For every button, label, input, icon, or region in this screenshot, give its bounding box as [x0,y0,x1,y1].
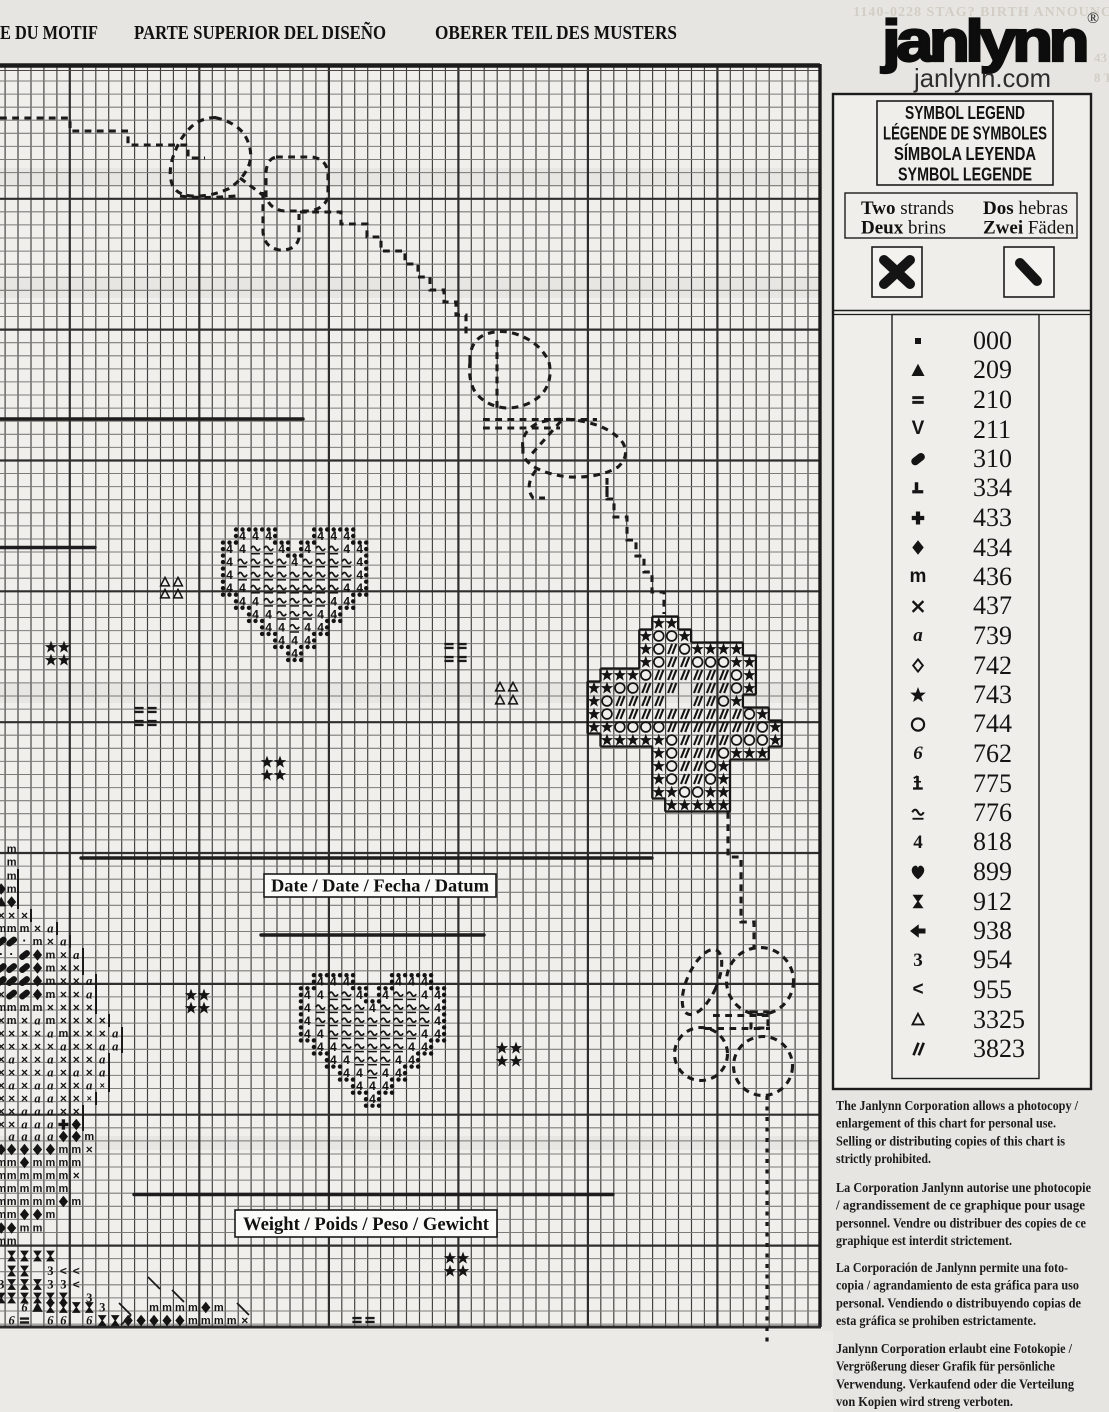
svg-text:Zwei Fäden: Zwei Fäden [983,218,1075,239]
svg-text:×: × [0,1104,5,1118]
svg-text:4: 4 [317,988,324,1002]
svg-text:4: 4 [317,1027,324,1041]
svg-text:4: 4 [304,1014,311,1028]
svg-text:m: m [7,1209,17,1221]
svg-text:334: 334 [973,473,1012,502]
svg-text:×: × [21,1065,28,1079]
svg-text:×: × [60,961,67,975]
svg-text:×: × [73,974,80,988]
svg-text:×: × [8,1039,15,1053]
svg-text:4: 4 [239,581,246,595]
svg-text:m: m [46,1170,56,1182]
svg-text:211: 211 [973,415,1011,444]
svg-text:m: m [46,989,56,1001]
svg-text:×: × [73,1026,80,1040]
svg-text:×: × [8,1104,15,1118]
svg-text:×: × [0,1065,5,1079]
svg-text:m: m [33,936,43,948]
svg-text:6: 6 [913,743,923,764]
svg-text:m: m [7,871,17,883]
svg-text:×: × [86,1052,93,1066]
svg-text:4: 4 [382,1066,389,1080]
svg-text:×: × [8,1091,15,1105]
svg-text:×: × [86,1000,93,1014]
svg-text:m: m [7,884,17,896]
svg-text:210: 210 [973,385,1012,414]
svg-text:×: × [73,1104,80,1118]
svg-text:m: m [46,1196,56,1208]
svg-text:personal. Vendiendo o distrib: personal. Vendiendo o distribuyendo copi… [836,1295,1081,1310]
svg-text:<: < [73,1264,80,1278]
svg-text:personnel. Vendre ou distribue: personnel. Vendre ou distribuer des copi… [836,1215,1086,1230]
svg-text:La Corporation Janlynn autoris: La Corporation Janlynn autorise une phot… [836,1180,1091,1195]
svg-text:m: m [0,1236,6,1248]
svg-text:m: m [33,1223,43,1235]
svg-text:899: 899 [973,857,1012,886]
svg-text:<: < [73,1277,80,1291]
svg-text:SYMBOL LEGEND: SYMBOL LEGEND [905,102,1025,123]
svg-text:×: × [8,1026,15,1040]
svg-text:3: 3 [60,1278,66,1292]
svg-text:a: a [47,1052,53,1066]
svg-text:×: × [86,1065,93,1079]
svg-text:/ agrandissement de ce graphiq: / agrandissement de ce graphique pour us… [835,1198,1085,1213]
svg-text:a: a [47,921,53,935]
svg-text:4: 4 [343,542,350,556]
svg-text:m: m [0,1209,6,1221]
svg-text:4: 4 [304,1001,311,1015]
svg-text:3: 3 [47,1278,53,1292]
svg-text:4: 4 [291,634,298,648]
svg-text:m: m [84,1131,94,1143]
svg-text:m: m [33,1183,43,1195]
svg-text:×: × [47,1000,54,1014]
svg-text:6: 6 [86,1314,93,1328]
svg-text:·: · [22,933,26,948]
svg-text:912: 912 [973,887,1012,916]
svg-text:a: a [86,1078,92,1092]
svg-text:m: m [20,1002,30,1014]
svg-text:Deux brins: Deux brins [861,218,946,239]
svg-text:4: 4 [913,832,923,853]
svg-text:743: 743 [973,680,1012,709]
svg-text:×: × [34,1052,41,1066]
svg-text:m: m [59,1170,69,1182]
svg-text:×: × [86,1026,93,1040]
svg-text:m: m [7,1170,17,1182]
svg-text:742: 742 [973,651,1012,680]
svg-text:m: m [7,1157,17,1169]
svg-text:Selling or distributing copies: Selling or distributing copies of this c… [836,1133,1066,1148]
svg-text:4: 4 [434,1001,441,1015]
svg-text:×: × [73,1168,80,1182]
svg-text:m: m [149,1302,159,1314]
svg-text:a: a [99,1065,105,1079]
svg-text:×: × [60,1052,67,1066]
svg-text:m: m [46,950,56,962]
svg-text:434: 434 [973,533,1012,562]
svg-text:m: m [7,1015,17,1027]
svg-text:4: 4 [343,581,350,595]
svg-text:×: × [87,1094,92,1104]
svg-text:m: m [33,1157,43,1169]
svg-text:×: × [73,961,80,975]
svg-text:4: 4 [356,555,363,569]
svg-text:×: × [60,1091,67,1105]
svg-text:×: × [86,1039,93,1053]
svg-text:a: a [47,1129,53,1143]
svg-text:a: a [913,625,923,646]
svg-text:×: × [21,1091,28,1105]
svg-text:×: × [21,1052,28,1066]
svg-text:×: × [8,908,15,922]
svg-text:×: × [73,987,80,1001]
svg-text:3: 3 [99,1301,105,1315]
svg-text:Weight / Poids / Peso / Gewich: Weight / Poids / Peso / Gewicht [243,1214,490,1235]
svg-text:×: × [0,908,5,922]
svg-text:m: m [20,1170,30,1182]
svg-text:a: a [21,1104,27,1118]
svg-text:janlynn.com: janlynn.com [913,63,1051,93]
svg-text:6: 6 [47,1314,54,1328]
svg-text:a: a [86,987,92,1001]
svg-text:×: × [21,1026,28,1040]
svg-text:×: × [0,1052,5,1066]
svg-text:4: 4 [408,1040,415,1054]
svg-text:a: a [34,1091,40,1105]
svg-text:m: m [20,1196,30,1208]
svg-text:×: × [100,1081,105,1091]
svg-text:000: 000 [973,326,1012,355]
svg-text:m: m [46,1157,56,1169]
svg-text:a: a [8,1129,14,1143]
svg-text:m: m [20,1223,30,1235]
svg-text:×: × [60,974,67,988]
svg-text:a: a [60,1039,66,1053]
svg-text:4: 4 [239,542,246,556]
svg-text:4: 4 [356,1066,363,1080]
svg-text:4: 4 [434,1014,441,1028]
svg-text:6: 6 [60,1314,67,1328]
svg-text:×: × [21,1013,28,1027]
svg-text:×: × [47,1039,54,1053]
svg-text:esta gráfica se prohiben estri: esta gráfica se prohiben estrictamente. [836,1313,1036,1328]
svg-text:×: × [73,1078,80,1092]
svg-text:3: 3 [0,1278,4,1292]
svg-text:V: V [912,418,925,439]
svg-text:776: 776 [973,798,1012,827]
svg-text:®: ® [1087,10,1099,27]
svg-text:m: m [7,1002,17,1014]
svg-text:m: m [0,1157,6,1169]
svg-text:×: × [99,1013,106,1027]
svg-text:×: × [241,1313,248,1327]
svg-text:a: a [8,1052,14,1066]
svg-text:SYMBOL LEGENDE: SYMBOL LEGENDE [898,164,1032,185]
svg-text:4: 4 [252,594,259,608]
svg-text:437: 437 [973,591,1012,620]
svg-text:graphique est interdit stricte: graphique est interdit strictement. [836,1233,1012,1248]
svg-text:a: a [47,1091,53,1105]
svg-text:×: × [60,1078,67,1092]
svg-text:m: m [0,1002,6,1014]
svg-text:a: a [34,1078,40,1092]
svg-text:×: × [73,1000,80,1014]
svg-text:×: × [0,1117,5,1131]
svg-text:a: a [99,1052,105,1066]
svg-text:×: × [60,1065,67,1079]
svg-text:4: 4 [421,988,428,1002]
svg-text:a: a [47,1078,53,1092]
svg-text:×: × [8,1065,15,1079]
svg-text:Verwendung. Verkaufend oder d: Verwendung. Verkaufend oder die Verteilu… [836,1376,1074,1391]
svg-text:775: 775 [973,769,1012,798]
svg-text:m: m [46,1015,56,1027]
svg-text:×: × [34,1026,41,1040]
svg-text:m: m [46,1209,56,1221]
svg-text:m: m [0,1170,6,1182]
svg-text:4: 4 [330,594,337,608]
svg-text:4: 4 [226,555,233,569]
svg-text:a: a [112,1039,118,1053]
svg-text:m: m [33,1196,43,1208]
svg-text:a: a [8,1078,14,1092]
svg-text:m: m [227,1315,237,1327]
svg-text:m: m [33,1002,43,1014]
svg-text:m: m [59,1183,69,1195]
svg-text:×: × [73,1052,80,1066]
svg-text:3823: 3823 [973,1034,1025,1063]
svg-text:·: · [9,947,13,962]
svg-text:m: m [7,1236,17,1248]
svg-text:m: m [0,1196,6,1208]
svg-text:×: × [60,1000,67,1014]
svg-text:m: m [7,1183,17,1195]
svg-text:m: m [7,844,17,856]
svg-text:6: 6 [21,1301,28,1315]
svg-text:OBERER TEIL DES MUSTERS: OBERER TEIL DES MUSTERS [435,22,677,44]
svg-text:Two strands: Two strands [861,198,954,219]
svg-text:×: × [0,1013,5,1027]
svg-text:Date / Date / Fecha / Datum: Date / Date / Fecha / Datum [271,876,489,896]
svg-text:938: 938 [973,916,1012,945]
svg-text:×: × [60,948,67,962]
svg-text:a: a [21,1129,27,1143]
svg-text:a: a [73,948,79,962]
svg-text:a: a [34,1013,40,1027]
svg-text:m: m [188,1302,198,1314]
svg-text:a: a [47,1104,53,1118]
svg-text:×: × [60,1013,67,1027]
svg-text:818: 818 [973,827,1012,856]
svg-text:m: m [71,1157,81,1169]
svg-text:436: 436 [973,562,1012,591]
svg-text:4: 4 [356,568,363,582]
svg-text:The Janlynn Corporation allows: The Janlynn Corporation allows a photoco… [836,1098,1078,1113]
svg-text:4: 4 [265,607,272,621]
svg-text:×: × [21,1039,28,1053]
svg-text:La Corporación de Janlynn perm: La Corporación de Janlynn permite una fo… [836,1260,1068,1275]
svg-text:m: m [46,976,56,988]
svg-text:a: a [60,934,66,948]
svg-text:m: m [59,1028,69,1040]
svg-text:4: 4 [343,1053,350,1067]
svg-text:×: × [73,1039,80,1053]
svg-text:m: m [7,1196,17,1208]
svg-text:×: × [34,921,41,935]
svg-text:739: 739 [973,621,1012,650]
svg-text:4: 4 [278,620,285,634]
svg-text:×: × [21,1078,28,1092]
svg-text:3: 3 [913,950,923,971]
svg-text:×: × [73,1013,80,1027]
svg-text:×: × [0,1039,5,1053]
svg-text:m: m [7,923,17,935]
svg-text:×: × [34,1039,41,1053]
svg-text:×: × [0,987,5,1001]
svg-text:m: m [0,923,6,935]
svg-text:762: 762 [973,739,1012,768]
svg-text:×: × [47,934,54,948]
svg-text:Janlynn Corporation erlaubt ei: Janlynn Corporation erlaubt eine Fotokop… [836,1341,1072,1356]
svg-text:a: a [34,1129,40,1143]
svg-text:8 T: 8 T [1094,70,1109,85]
svg-text:m: m [910,566,927,587]
svg-text:955: 955 [973,975,1012,1004]
svg-text:×: × [0,1078,5,1092]
svg-text:m: m [59,1144,69,1156]
svg-text:4: 4 [304,620,311,634]
svg-text:strictly prohibited.: strictly prohibited. [836,1151,931,1166]
svg-text:43: 43 [1094,50,1108,65]
svg-text:3325: 3325 [973,1005,1025,1034]
svg-text:<: < [912,979,923,1000]
svg-text:3: 3 [47,1264,53,1278]
svg-text:·: · [0,947,3,962]
svg-text:copia / agrandamiento de esta: copia / agrandamiento de esta gráfica pa… [836,1278,1079,1293]
svg-text:m: m [71,1144,81,1156]
svg-text:×: × [86,1142,93,1156]
svg-text:m: m [162,1302,172,1314]
svg-text:a: a [73,1065,79,1079]
svg-text:SÍMBOLA LEYENDA: SÍMBOLA LEYENDA [894,143,1036,164]
svg-text:4: 4 [317,607,324,621]
svg-text:m: m [59,1157,69,1169]
svg-text:m: m [46,1183,56,1195]
svg-text:×: × [21,908,28,922]
svg-text:×: × [0,1026,5,1040]
svg-text:4: 4 [421,1027,428,1041]
svg-text:enlargement of this chart for: enlargement of this chart for personal u… [836,1116,1056,1131]
svg-text:PARTE SUPERIOR DEL DISEÑO: PARTE SUPERIOR DEL DISEÑO [134,21,386,44]
svg-text:m: m [46,963,56,975]
svg-text:×: × [60,1104,67,1118]
svg-text:209: 209 [973,355,1012,384]
svg-text:×: × [73,1091,80,1105]
svg-text:a: a [112,1026,118,1040]
svg-text:954: 954 [973,945,1012,974]
svg-text:×: × [34,1065,41,1079]
svg-text:<: < [60,1264,67,1278]
svg-text:m: m [20,1183,30,1195]
svg-text:von Kopien wird streng verbote: von Kopien wird streng verboten. [836,1394,1013,1409]
svg-text:a: a [47,1026,53,1040]
svg-text:×: × [86,1013,93,1027]
svg-text:×: × [99,1026,106,1040]
svg-text:a: a [47,1065,53,1079]
svg-text:4: 4 [226,568,233,582]
svg-text:310: 310 [973,444,1012,473]
svg-text:a: a [34,1104,40,1118]
svg-text:m: m [33,1170,43,1182]
svg-text:Vergrößerung dieser Grafik für: Vergrößerung dieser Grafik für persönlic… [836,1359,1055,1374]
svg-text:433: 433 [973,503,1012,532]
svg-text:m: m [0,1183,6,1195]
svg-text:m: m [71,1196,81,1208]
svg-text:4: 4 [395,1053,402,1067]
svg-text:744: 744 [973,709,1012,738]
svg-text:m: m [188,1315,198,1327]
svg-text:m: m [214,1315,224,1327]
svg-text:m: m [175,1302,185,1314]
svg-text:Dos hebras: Dos hebras [983,198,1068,219]
svg-text:4: 4 [369,1079,376,1093]
svg-text:LÉGENDE DE SYMBOLES: LÉGENDE DE SYMBOLES [883,123,1047,144]
svg-text:×: × [60,987,67,1001]
svg-text:4: 4 [330,1040,337,1054]
svg-text:m: m [7,857,17,869]
svg-text:a: a [86,974,92,988]
svg-text:6: 6 [8,1314,15,1328]
svg-text:E DU MOTIF: E DU MOTIF [0,22,98,44]
svg-text:a: a [99,1039,105,1053]
svg-text:×: × [0,1091,5,1105]
svg-text:m: m [201,1315,211,1327]
svg-text:m: m [214,1302,224,1314]
